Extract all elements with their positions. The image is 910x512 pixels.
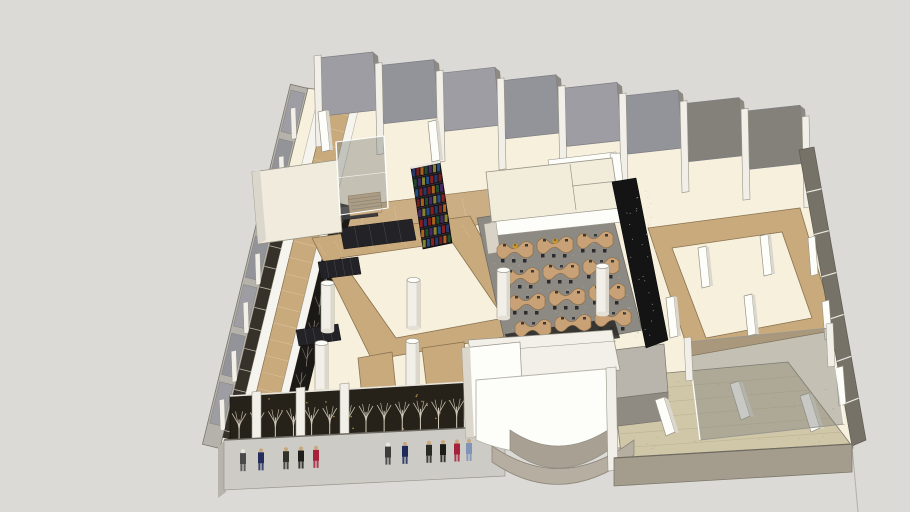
floorplan-3d-render [0, 0, 910, 512]
model-viewport[interactable] [0, 0, 910, 512]
glass-panel [684, 323, 844, 440]
